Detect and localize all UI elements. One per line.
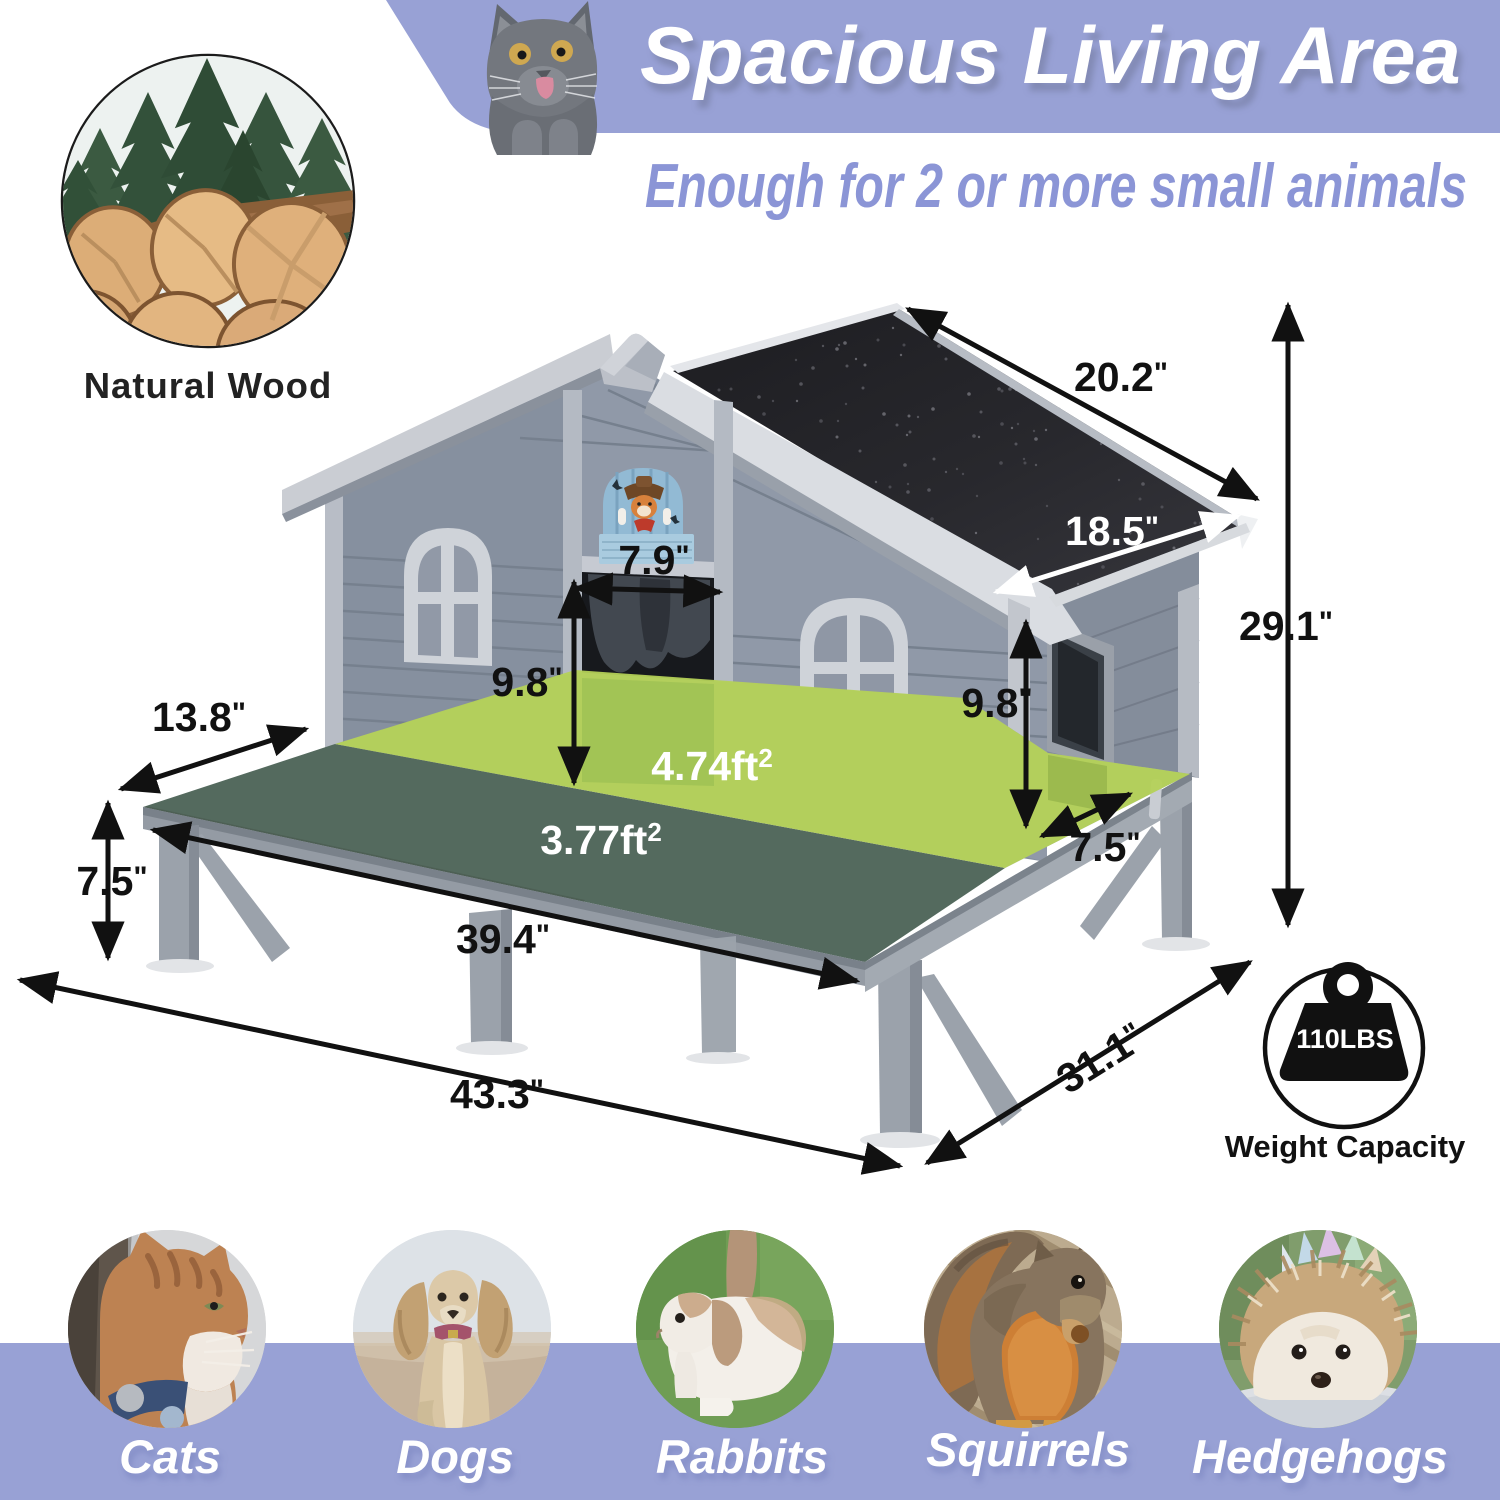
- svg-text:Natural Wood: Natural Wood: [84, 365, 333, 406]
- svg-text:Hedgehogs: Hedgehogs: [1192, 1430, 1448, 1483]
- svg-text:29.1": 29.1": [1239, 603, 1333, 649]
- svg-text:39.4": 39.4": [456, 916, 550, 962]
- svg-text:3.77ft2: 3.77ft2: [540, 817, 662, 863]
- svg-text:Dogs: Dogs: [396, 1430, 514, 1483]
- svg-text:Rabbits: Rabbits: [656, 1430, 828, 1483]
- svg-text:43.3": 43.3": [450, 1071, 544, 1117]
- svg-text:Cats: Cats: [119, 1430, 221, 1483]
- svg-text:13.8": 13.8": [152, 694, 246, 740]
- svg-text:7.5": 7.5": [76, 858, 147, 904]
- svg-text:Weight Capacity: Weight Capacity: [1225, 1129, 1466, 1164]
- svg-text:4.74ft2: 4.74ft2: [651, 743, 773, 789]
- svg-text:110LBS: 110LBS: [1296, 1024, 1394, 1054]
- svg-text:Squirrels: Squirrels: [926, 1423, 1130, 1476]
- svg-text:20.2": 20.2": [1074, 354, 1168, 400]
- svg-text:Spacious Living Area: Spacious Living Area: [640, 11, 1461, 101]
- svg-text:31.1": 31.1": [1049, 1014, 1153, 1103]
- svg-text:Enough for 2 or more small ani: Enough for 2 or more small animals: [645, 151, 1467, 220]
